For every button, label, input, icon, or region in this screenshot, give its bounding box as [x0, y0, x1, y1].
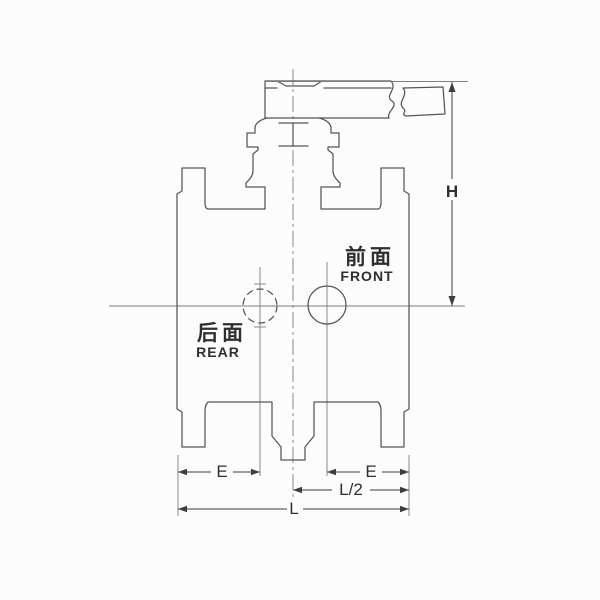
dim-L: L: [178, 499, 409, 518]
arrowhead-down-icon: [449, 296, 456, 306]
label-rear-zh: 后面: [197, 321, 247, 345]
dim-label-e-right: E: [365, 462, 376, 481]
dim-E-right: E: [327, 461, 409, 481]
annotations: 前面 FRONT 后面 REAR: [196, 245, 395, 360]
extension-lines: [178, 82, 468, 517]
label-front-zh: 前面: [345, 245, 395, 269]
handle-break-squiggle-1: [389, 81, 395, 118]
label-front-en: FRONT: [340, 268, 393, 284]
handle-break-squiggle-2: [401, 88, 406, 116]
valve-engineering-drawing: H E E L/2 L 前面 FRONT 后面 REAR: [0, 0, 600, 600]
handle-break-end: [403, 87, 445, 116]
centerlines: [109, 69, 465, 497]
dim-L-half: L/2: [293, 479, 409, 499]
dim-label-e-left: E: [216, 462, 227, 481]
stem-section-marks: [279, 123, 308, 146]
dim-label-l: L: [289, 499, 298, 518]
label-rear-en: REAR: [196, 344, 240, 360]
handle-lever: [265, 81, 445, 118]
dim-E-left: E: [178, 461, 260, 481]
dim-label-l-half: L/2: [339, 480, 363, 499]
dim-label-h: H: [446, 182, 458, 201]
dim-H: H: [443, 82, 461, 306]
arrowhead-up-icon: [449, 82, 456, 92]
